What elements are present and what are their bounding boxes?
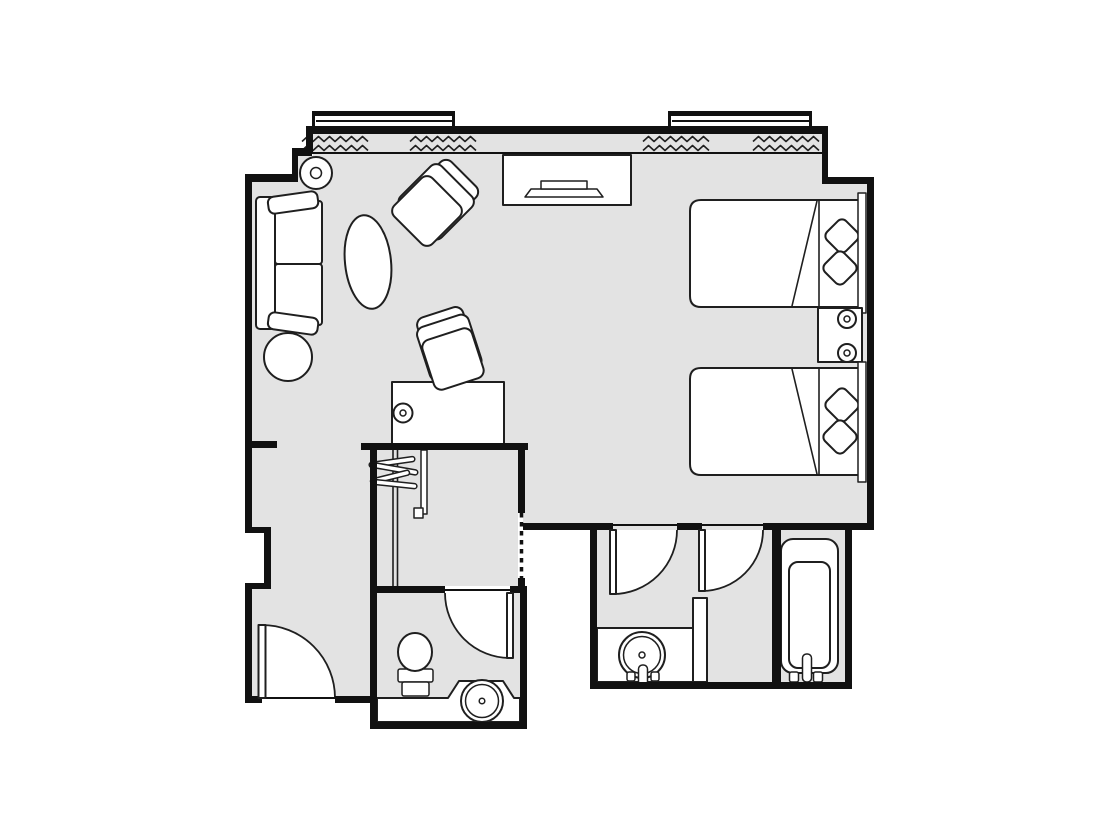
wc-door-leaf [699, 530, 705, 591]
entry-doorway [262, 697, 335, 699]
closet-divider-end [414, 508, 423, 518]
tap-knob [814, 672, 823, 682]
tv-console [503, 155, 631, 205]
desk-lamp [394, 404, 413, 423]
television [525, 189, 603, 197]
bed-1 [690, 193, 866, 313]
floor-lamp [300, 157, 332, 189]
window-bay-right [668, 111, 812, 128]
hall-stub-wall [252, 441, 277, 448]
top-wall [308, 126, 828, 134]
round-side-table [264, 333, 312, 381]
nightstand [818, 308, 862, 362]
partition-stub-wall [693, 598, 707, 682]
headboard [858, 193, 866, 313]
television-screen [541, 181, 587, 189]
bathroom-right-door-leaf [610, 530, 616, 594]
tub-partition-wall [772, 530, 781, 682]
tap-knob [627, 672, 635, 681]
wc-doorway [702, 524, 763, 526]
window-sill-line [310, 152, 826, 154]
window-bay-left [312, 111, 455, 128]
bathroom-center-doorway [445, 589, 510, 591]
right-wall [867, 177, 874, 530]
floor-plan-page [0, 0, 1120, 840]
bathtub [781, 539, 838, 682]
closet-top-wall [361, 443, 528, 450]
tap-knob [790, 672, 799, 682]
closet-divider [421, 450, 427, 514]
left-wall [245, 174, 252, 533]
bathroom-center-door-leaf [507, 593, 513, 658]
tap-knob [651, 672, 659, 681]
headboard [858, 362, 866, 482]
bedroom-bottom-wall [523, 523, 613, 530]
tub-spout [803, 654, 812, 682]
floor-plan-drawing [0, 0, 1120, 840]
sofa [256, 191, 322, 336]
bathroom-right-doorway [613, 524, 677, 526]
entry-door-leaf [259, 625, 266, 698]
toilet [398, 633, 433, 696]
bed-2 [690, 362, 866, 482]
